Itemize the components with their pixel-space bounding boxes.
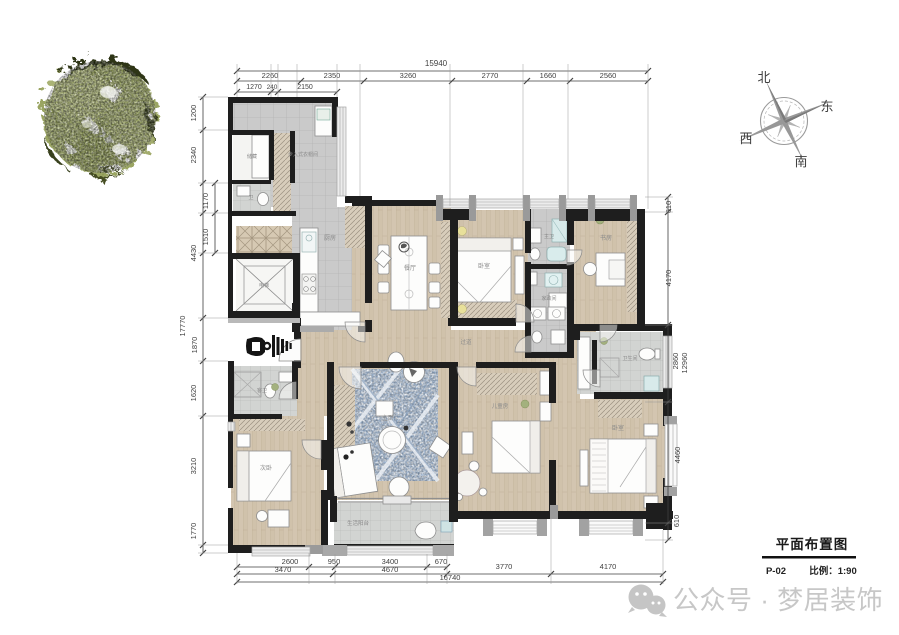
svg-text:餐厅: 餐厅 (404, 264, 416, 272)
svg-text:2770: 2770 (482, 71, 499, 80)
svg-text:670: 670 (435, 557, 448, 566)
svg-text:17770: 17770 (178, 316, 187, 337)
svg-text:3210: 3210 (189, 458, 198, 475)
svg-text:主卧: 主卧 (382, 414, 394, 422)
svg-text:东: 东 (820, 99, 833, 114)
svg-text:客卫: 客卫 (257, 387, 267, 394)
svg-text:4170: 4170 (664, 270, 673, 287)
svg-text:平面布置图: 平面布置图 (776, 536, 849, 552)
svg-text:次卧: 次卧 (260, 464, 272, 472)
svg-text:1200: 1200 (189, 105, 198, 122)
svg-text:3470: 3470 (275, 565, 292, 574)
svg-text:240: 240 (267, 84, 278, 91)
svg-text:步入式衣帽间: 步入式衣帽间 (288, 151, 318, 158)
svg-text:4430: 4430 (189, 245, 198, 262)
svg-text:610: 610 (672, 515, 681, 528)
svg-text:1770: 1770 (189, 523, 198, 540)
svg-text:卫生间: 卫生间 (622, 355, 637, 362)
svg-text:生活阳台: 生活阳台 (347, 519, 370, 527)
svg-text:比例：1:90: 比例：1:90 (809, 565, 857, 577)
svg-text:950: 950 (328, 557, 341, 566)
svg-text:卧室: 卧室 (478, 262, 490, 270)
svg-text:15940: 15940 (425, 59, 448, 68)
svg-text:2260: 2260 (262, 71, 279, 80)
svg-text:2860: 2860 (671, 353, 680, 370)
svg-text:南: 南 (794, 154, 807, 169)
svg-text:西: 西 (739, 131, 752, 146)
svg-text:卫: 卫 (248, 195, 253, 201)
svg-text:2350: 2350 (324, 71, 341, 80)
svg-text:3260: 3260 (400, 71, 417, 80)
svg-text:主卫: 主卫 (544, 233, 554, 240)
svg-text:书房: 书房 (600, 234, 612, 242)
svg-text:2560: 2560 (600, 71, 617, 80)
svg-text:家政间: 家政间 (541, 295, 556, 302)
svg-text:16740: 16740 (440, 573, 461, 582)
svg-text:12960: 12960 (680, 353, 689, 374)
svg-text:电梯: 电梯 (259, 282, 269, 289)
svg-text:1270: 1270 (246, 84, 262, 91)
svg-text:1870: 1870 (190, 337, 199, 354)
svg-text:儿童房: 儿童房 (492, 402, 509, 410)
svg-text:3770: 3770 (496, 562, 513, 571)
svg-text:2150: 2150 (297, 84, 313, 91)
svg-text:1510: 1510 (201, 229, 210, 246)
svg-text:厨房: 厨房 (324, 234, 336, 242)
svg-text:储藏: 储藏 (247, 153, 257, 160)
svg-text:公众号 · 梦居装饰: 公众号 · 梦居装饰 (673, 585, 883, 615)
svg-text:1170: 1170 (201, 193, 210, 209)
svg-text:4170: 4170 (600, 562, 617, 571)
svg-text:P-02: P-02 (766, 566, 786, 577)
svg-text:1660: 1660 (540, 71, 557, 80)
svg-text:610: 610 (664, 201, 673, 214)
svg-text:北: 北 (757, 70, 770, 85)
svg-text:卧室: 卧室 (612, 424, 624, 432)
svg-text:4460: 4460 (673, 447, 682, 464)
svg-text:4670: 4670 (382, 565, 399, 574)
svg-text:过道: 过道 (460, 338, 472, 346)
svg-text:1620: 1620 (189, 385, 198, 402)
svg-text:2340: 2340 (189, 147, 198, 164)
